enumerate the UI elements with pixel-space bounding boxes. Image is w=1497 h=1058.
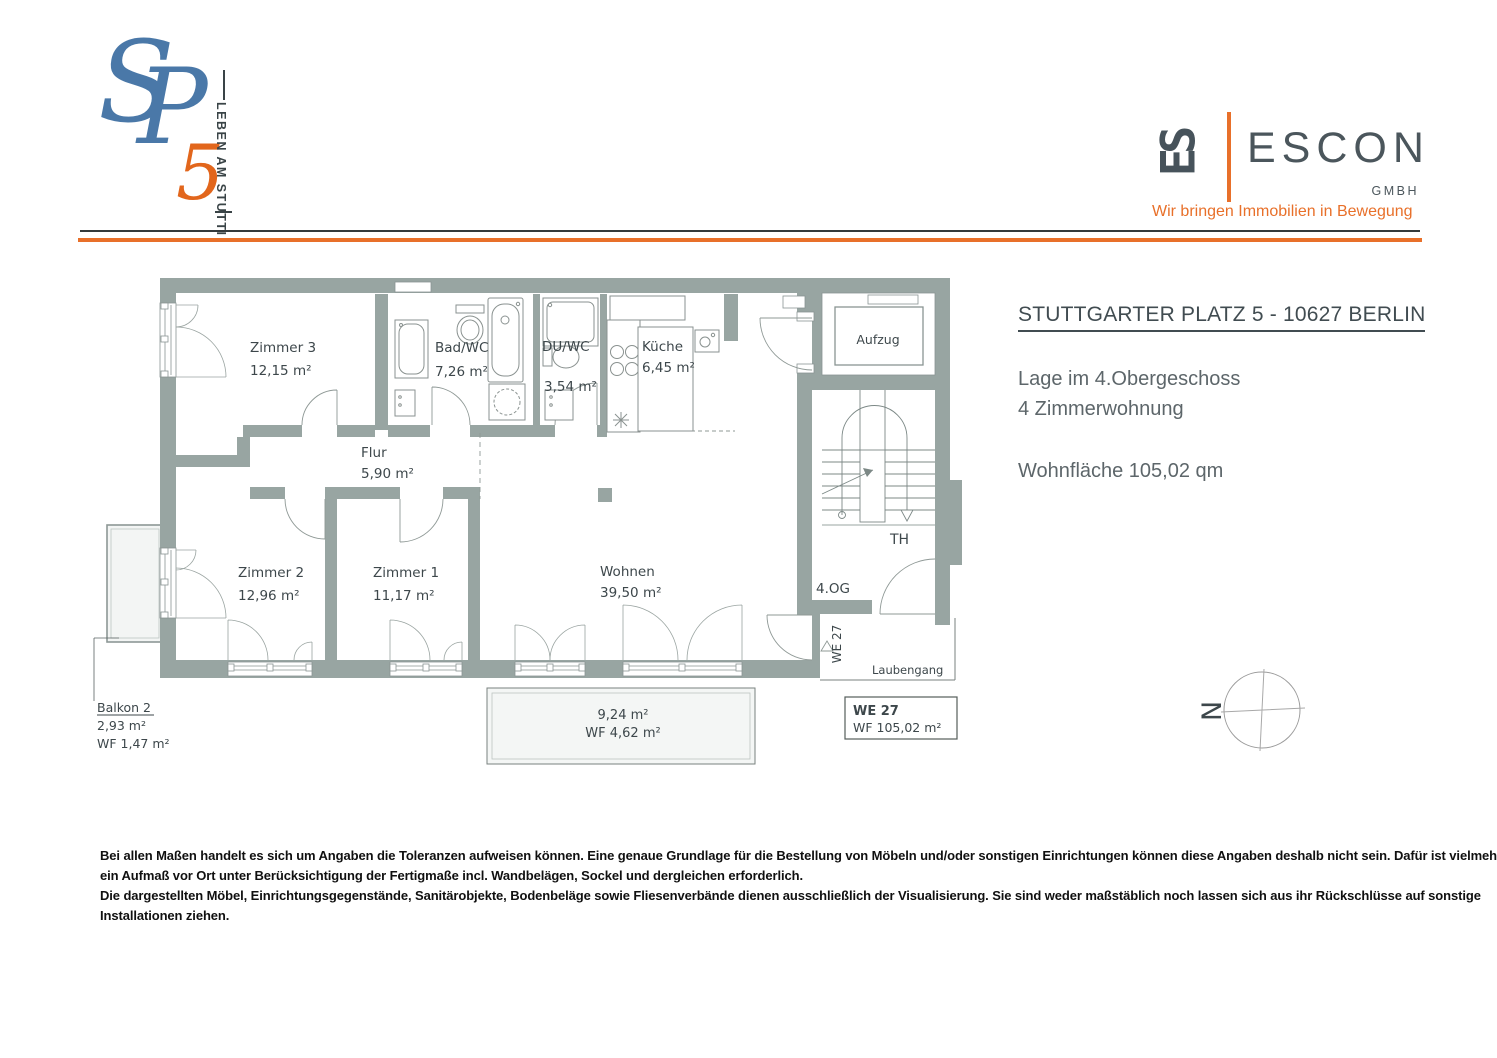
room-label-flur: Flur <box>361 445 387 461</box>
floor-plan: Zimmer 3 12,15 m² Bad/WC 7,26 m² DU/WC 3… <box>85 260 975 770</box>
window-zimmer2-left <box>160 548 226 618</box>
room-label-wohnen: Wohnen <box>600 564 655 580</box>
balkon2-area: 2,93 m² <box>97 718 146 733</box>
header-rule-dark <box>80 230 1420 232</box>
room-area-zimmer3: 12,15 m² <box>250 363 312 379</box>
window-zimmer2-bottom <box>228 620 312 676</box>
info-apartment-type: 4 Zimmerwohnung <box>1018 398 1184 421</box>
sp5-logo-vertical-tagline: LEBEN AM STUTTI <box>214 102 228 237</box>
room-area-badwc: 7,26 m² <box>435 364 488 380</box>
room-label-zimmer2: Zimmer 2 <box>238 565 304 581</box>
room-label-kueche: Küche <box>642 339 683 355</box>
room-area-zimmer2: 12,96 m² <box>238 588 300 604</box>
bottom-balcony-area: 9,24 m² <box>598 708 649 723</box>
label-th: TH <box>889 532 909 548</box>
window-wohnen-a <box>515 625 585 676</box>
balkon2-shape <box>107 525 163 642</box>
compass-north-label: N <box>1195 701 1226 721</box>
room-area-kueche: 6,45 m² <box>642 360 695 376</box>
escon-tagline: Wir bringen Immobilien in Bewegung <box>1152 203 1413 221</box>
stove-asterisk-icon <box>613 412 629 428</box>
page-title: STUTTGARTER PLATZ 5 - 10627 BERLIN <box>1018 303 1425 332</box>
disclaimer-line-2: ein Aufmaß vor Ort unter Berücksichtigun… <box>100 866 1470 886</box>
escon-name: ESCON <box>1247 124 1430 173</box>
escon-monogram-icon: ES <box>1150 110 1214 200</box>
disclaimer-line-4: Installationen ziehen. <box>100 906 1470 926</box>
bad-fixtures <box>395 298 525 420</box>
window-zimmer3 <box>160 303 226 377</box>
escon-monogram-text: ES <box>1152 128 1207 176</box>
room-label-duwc: DU/WC <box>542 339 590 355</box>
escon-divider-bar <box>1227 112 1231 202</box>
label-we27-vertical: WE 27 <box>830 625 844 664</box>
room-area-flur: 5,90 m² <box>361 466 414 482</box>
sp5-logo-rule-bottom <box>215 211 232 213</box>
escon-legal-suffix: GMBH <box>1247 184 1419 198</box>
label-4og: 4.OG <box>816 581 850 597</box>
balkon2-wf: WF 1,47 m² <box>97 736 170 751</box>
label-laubengang: Laubengang <box>872 663 943 677</box>
disclaimer-line-3: Die dargestellten Möbel, Einrichtungsgeg… <box>100 886 1470 906</box>
disclaimer-block: Bei allen Maßen handelt es sich um Angab… <box>100 846 1470 926</box>
window-zimmer1-bottom <box>390 620 462 676</box>
unit-box-area: WF 105,02 m² <box>853 720 941 735</box>
room-label-zimmer3: Zimmer 3 <box>250 340 316 356</box>
stairwell <box>822 390 935 525</box>
room-label-badwc: Bad/WC <box>435 340 488 356</box>
bottom-balcony-wf: WF 4,62 m² <box>585 726 660 741</box>
compass: N <box>1185 655 1345 767</box>
expose-page: S P 5 LEBEN AM STUTTI ES ESCON GMBH Wir … <box>0 0 1497 1058</box>
sp5-logo-rule-top <box>223 70 225 100</box>
room-area-zimmer1: 11,17 m² <box>373 588 435 604</box>
duwc-fixtures <box>543 298 598 420</box>
info-living-area: Wohnfläche 105,02 qm <box>1018 460 1223 483</box>
info-location: Lage im 4.Obergeschoss <box>1018 368 1240 391</box>
room-area-wohnen: 39,50 m² <box>600 585 662 601</box>
unit-box-id: WE 27 <box>853 704 899 719</box>
compass-cross-icon <box>1221 669 1305 751</box>
label-aufzug: Aufzug <box>856 332 899 347</box>
header-rule-orange <box>78 238 1422 242</box>
window-wohnen-b <box>623 605 742 676</box>
room-area-duwc: 3,54 m² <box>544 379 597 395</box>
balkon2-name: Balkon 2 <box>97 700 151 715</box>
disclaimer-line-1: Bei allen Maßen handelt es sich um Angab… <box>100 846 1470 866</box>
room-label-zimmer1: Zimmer 1 <box>373 565 439 581</box>
